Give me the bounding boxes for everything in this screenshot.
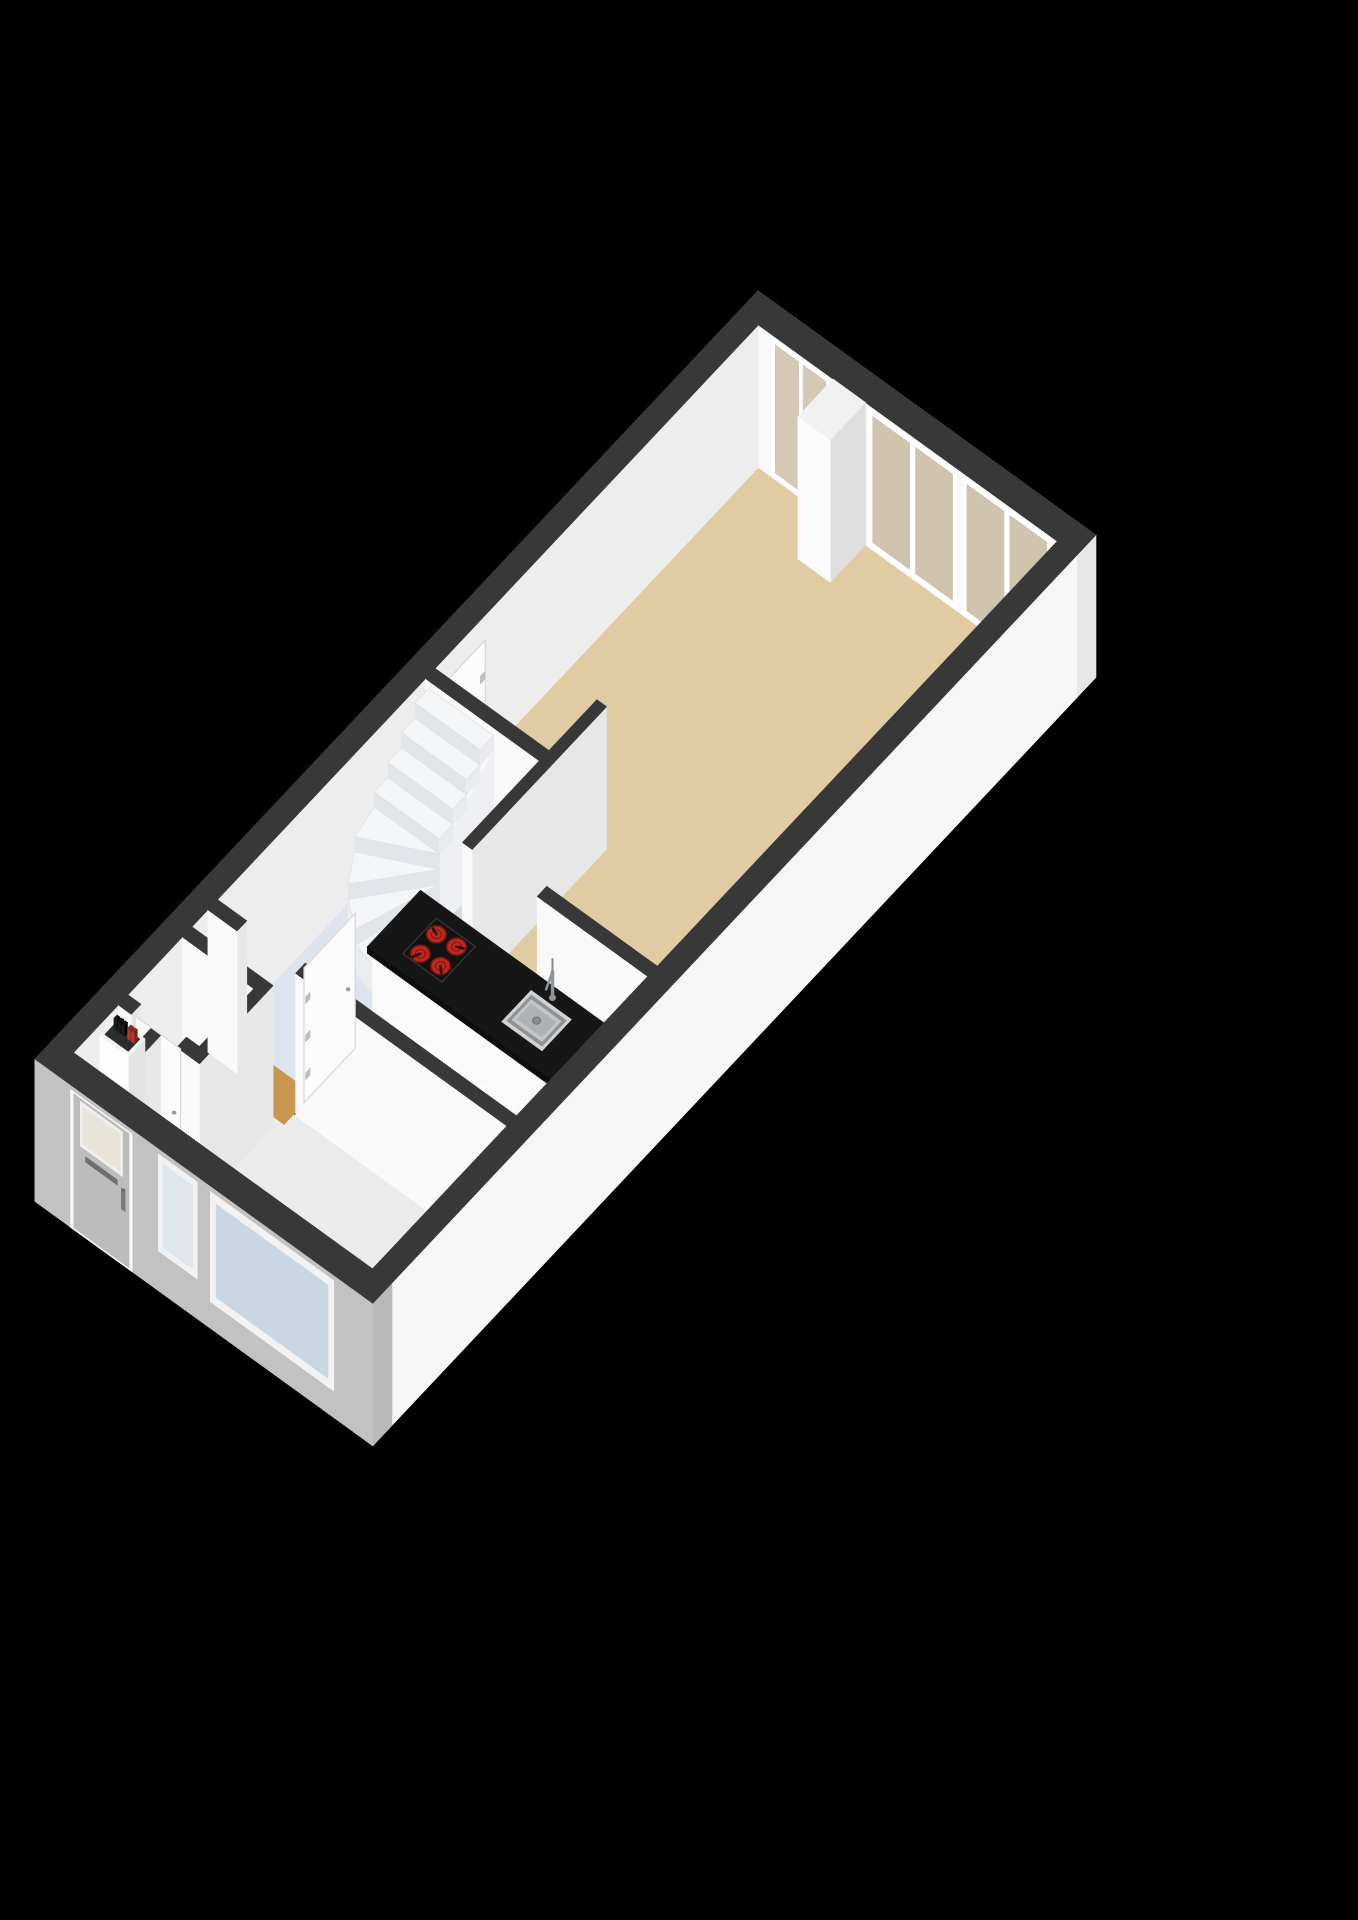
floorplan-3d-figure — [0, 0, 1358, 1920]
floorplan-stage — [0, 0, 1358, 1920]
wall-column — [798, 379, 866, 582]
floorplan-3d-canvas — [0, 0, 1358, 1920]
